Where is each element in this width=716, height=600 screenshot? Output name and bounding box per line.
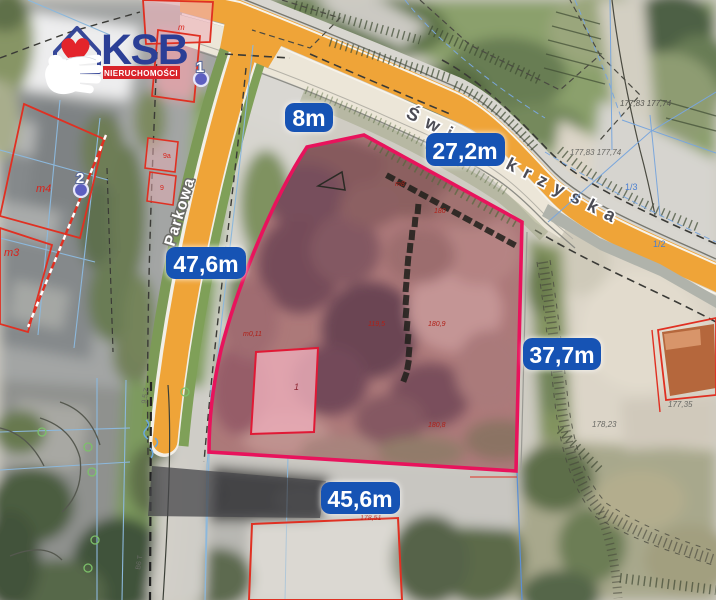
- svg-text:45,6m: 45,6m: [327, 486, 392, 512]
- svg-text:9: 9: [160, 185, 164, 192]
- svg-text:NIERUCHOMOŚCI: NIERUCHOMOŚCI: [104, 69, 178, 78]
- svg-text:1: 1: [294, 382, 299, 392]
- svg-text:180,8: 180,8: [428, 422, 446, 429]
- svg-text:1/3: 1/3: [625, 182, 638, 192]
- svg-text:177,83 177,74: 177,83 177,74: [620, 99, 672, 108]
- svg-text:177,35: 177,35: [668, 400, 693, 409]
- svg-text:1: 1: [196, 59, 204, 76]
- svg-text:177,83 177,74: 177,83 177,74: [570, 148, 622, 157]
- svg-text:27,2m: 27,2m: [432, 138, 497, 164]
- svg-text:m4: m4: [36, 183, 51, 195]
- svg-text:119,5: 119,5: [368, 321, 385, 328]
- svg-text:m3: m3: [4, 247, 20, 259]
- svg-text:37,7m: 37,7m: [529, 342, 594, 368]
- svg-text:8m: 8m: [292, 105, 325, 131]
- svg-text:178,51: 178,51: [360, 515, 382, 522]
- svg-text:178,23: 178,23: [592, 420, 617, 429]
- svg-text:1/2: 1/2: [653, 239, 666, 249]
- svg-text:m0,11: m0,11: [243, 331, 262, 338]
- svg-text:47,6m: 47,6m: [173, 251, 238, 277]
- svg-text:180,9: 180,9: [428, 321, 446, 328]
- svg-text:2: 2: [76, 170, 84, 187]
- svg-text:180: 180: [434, 208, 446, 215]
- svg-text:m8: m8: [395, 181, 405, 188]
- svg-text:9a: 9a: [163, 153, 171, 160]
